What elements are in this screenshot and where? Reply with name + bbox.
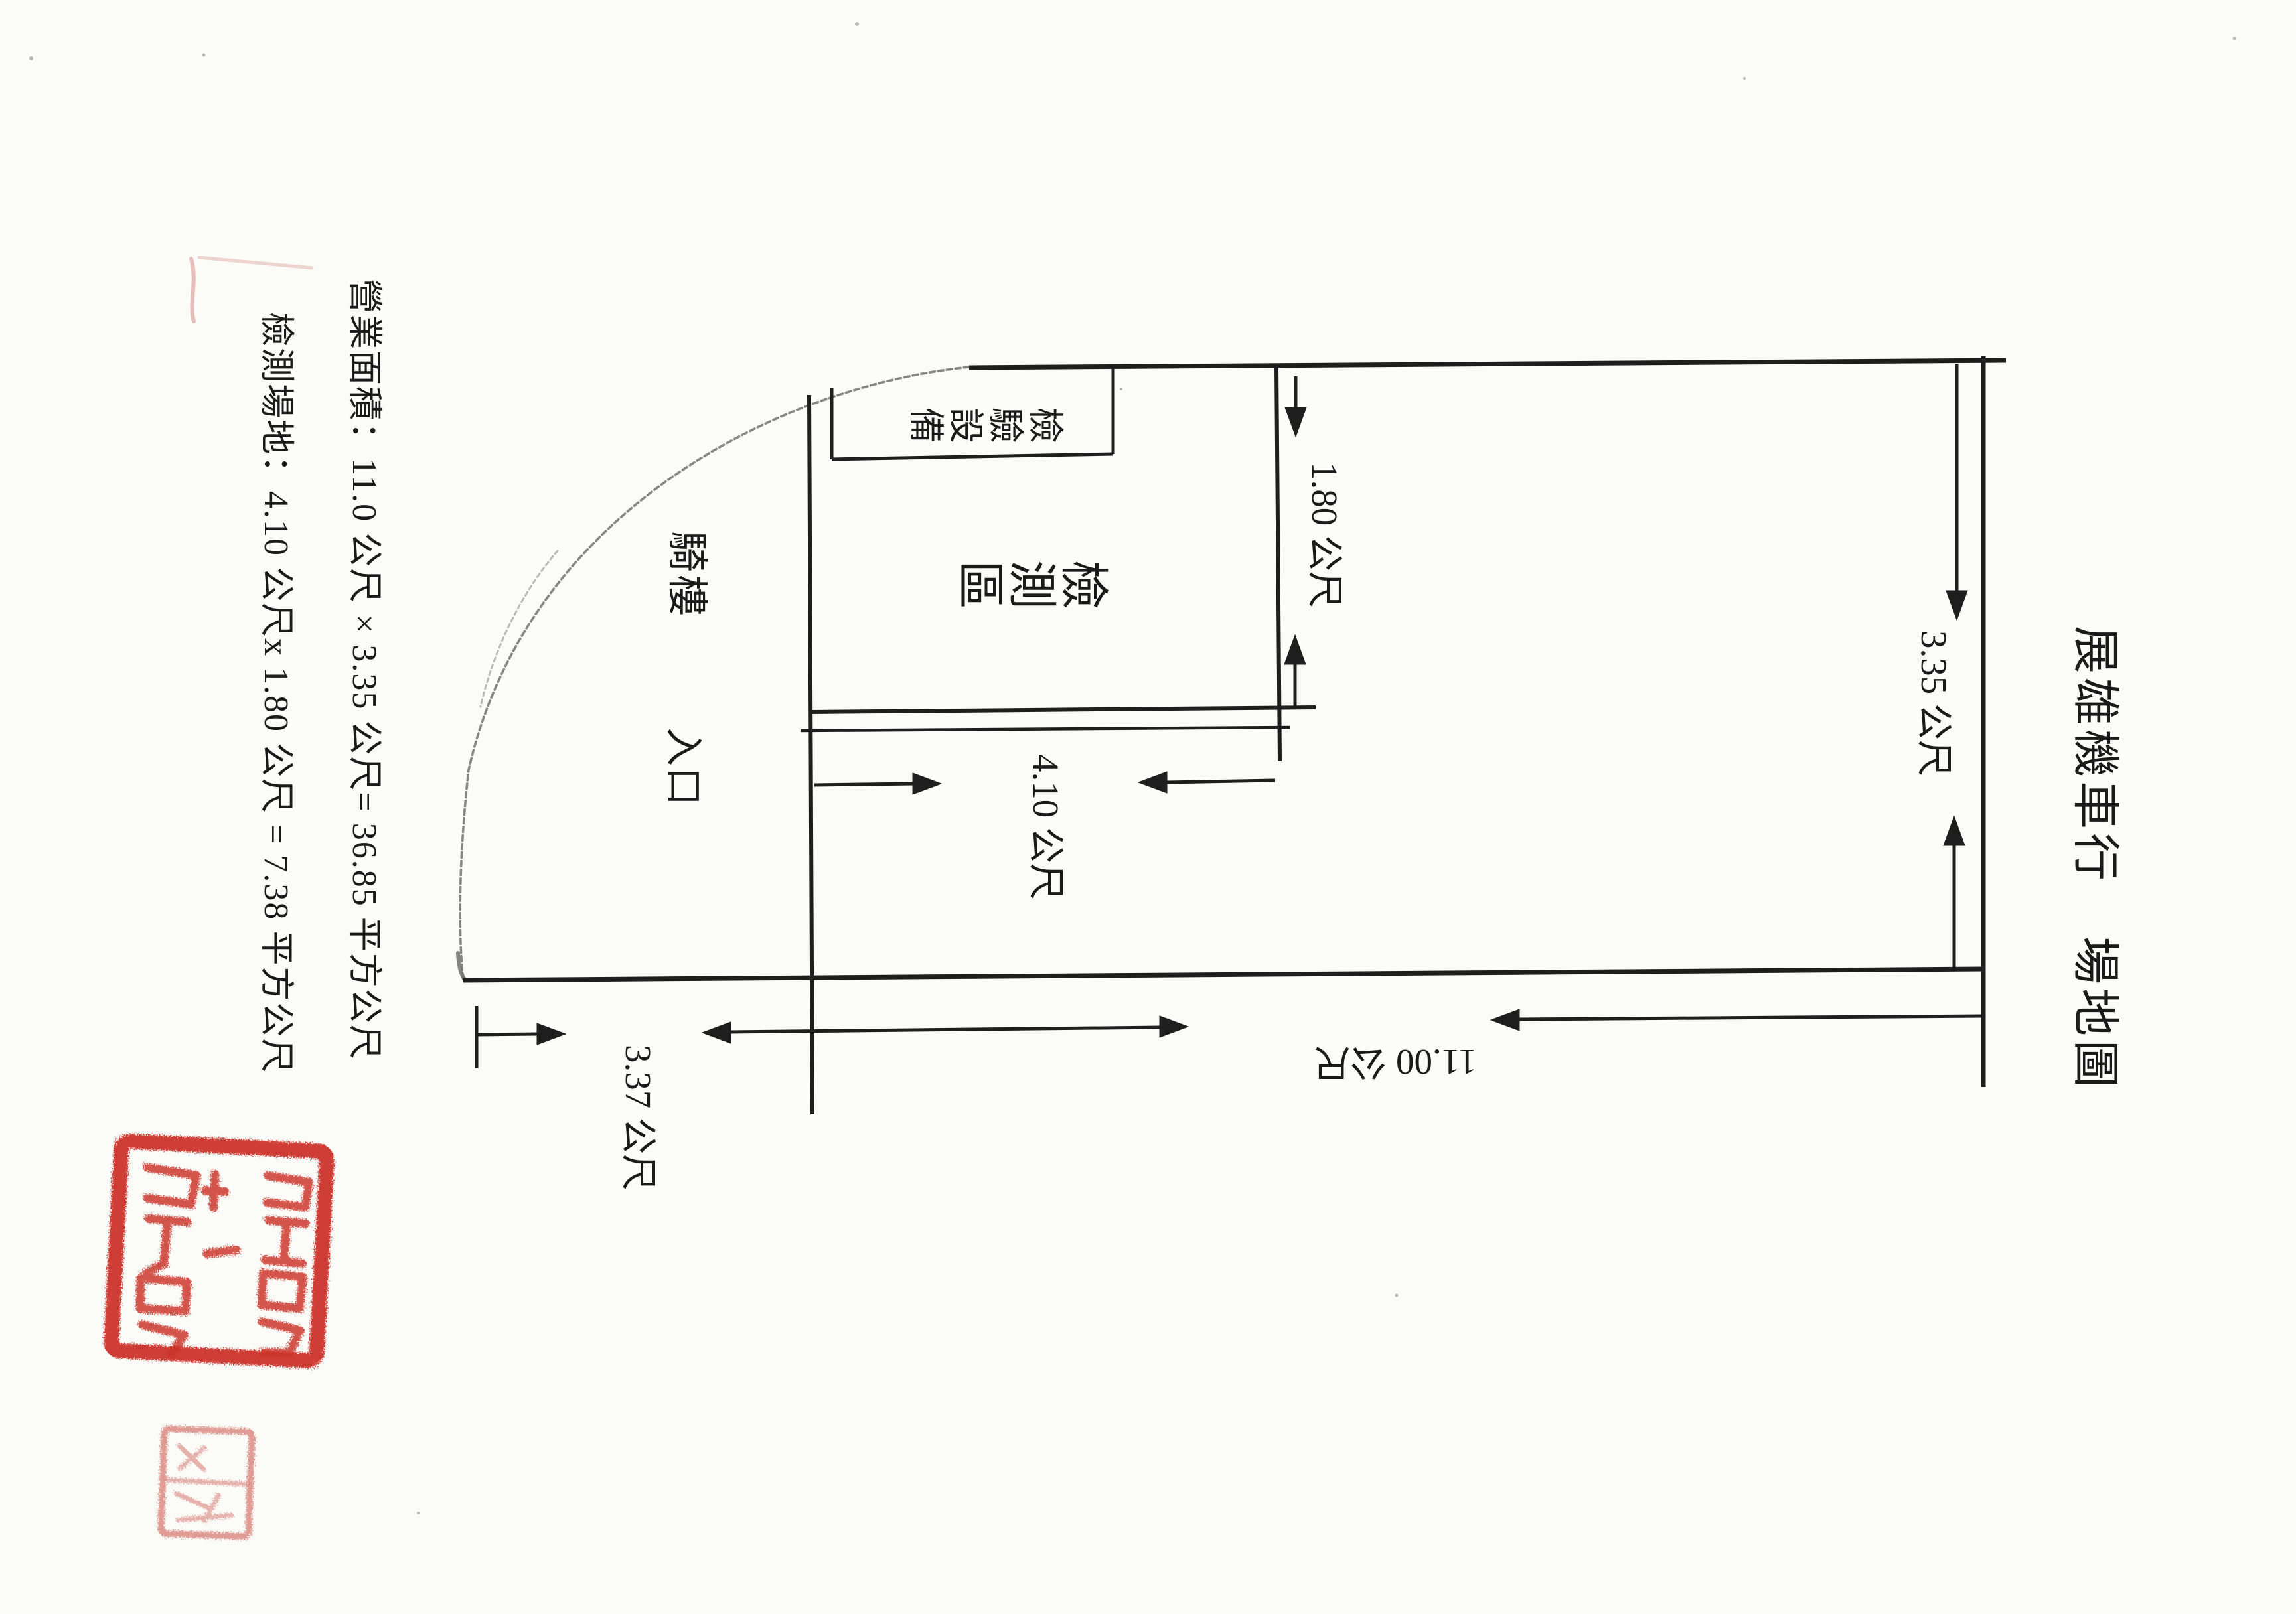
dim-1100-left-shaft	[1517, 1016, 1983, 1019]
divider-wall	[809, 395, 812, 1114]
dim-1100-left-arrowhead	[1491, 1009, 1519, 1031]
dim-410-right-shaft	[814, 784, 915, 785]
dim-335-down-arrowhead	[1946, 591, 1967, 620]
floor-plan-drawing	[0, 0, 2296, 1614]
scanned-page: 營業面積：11.0 公尺 × 3.35 公尺= 36.85 平方公尺 檢測場地：…	[0, 0, 2296, 1614]
dim-label-180: 1.80 公尺	[1305, 462, 1343, 608]
label-equipment: 檢驗設備	[905, 402, 1065, 440]
large-seal-stamp	[111, 1141, 327, 1362]
dim-label-1100: 11.00 公尺	[1314, 1043, 1476, 1081]
dim-180-up-arrowhead	[1284, 635, 1306, 664]
dim-shared-shaft	[729, 1027, 1162, 1032]
small-seal-stamp	[161, 1429, 252, 1537]
test-zone-bottom-wall	[810, 707, 1316, 712]
dim-410-left-arrowhead	[1138, 772, 1167, 793]
test-zone-right-wall	[1276, 366, 1280, 761]
label-test-zone: 檢測區	[955, 553, 1110, 605]
label-arcade: 騎樓	[664, 531, 708, 619]
small-seal-glyphs	[165, 1445, 248, 1522]
dim-label-335: 3.35 公尺	[1914, 630, 1953, 776]
curve-double-stroke	[481, 551, 558, 707]
large-seal-glyphs	[137, 1167, 309, 1360]
equipment-box-bottom	[832, 454, 1113, 459]
dim-337-right-arrowhead	[537, 1023, 566, 1045]
dim-410-right-arrowhead	[913, 773, 941, 794]
test-zone-bottom-wall-2nd-stroke	[801, 727, 1290, 731]
page-title: 展雄機車行 場地圖	[2070, 626, 2120, 1092]
dim-335-up-arrowhead	[1944, 816, 1965, 845]
dim-337-left-arrowhead	[702, 1022, 731, 1043]
dim-410-left-shaft	[1165, 780, 1275, 782]
outline-top-wall	[969, 360, 2006, 368]
label-entrance: 入口	[663, 727, 704, 807]
dim-label-410: 4.10 公尺	[1026, 754, 1065, 900]
dim-337-right-shaft	[477, 1034, 539, 1035]
dim-label-337: 3.37 公尺	[619, 1045, 657, 1191]
dim-1100-right-arrowhead	[1160, 1016, 1188, 1037]
outline-bottom-wall	[463, 969, 1983, 980]
note-test-site: 檢測場地：4.10 公尺x 1.80 公尺 = 7.38 平方公尺	[258, 312, 294, 1074]
dim-180-down-arrowhead	[1285, 407, 1306, 437]
dimension-arrows	[477, 364, 1983, 1068]
note-business-area: 營業面積：11.0 公尺 × 3.35 公尺= 36.85 平方公尺	[346, 279, 382, 1061]
